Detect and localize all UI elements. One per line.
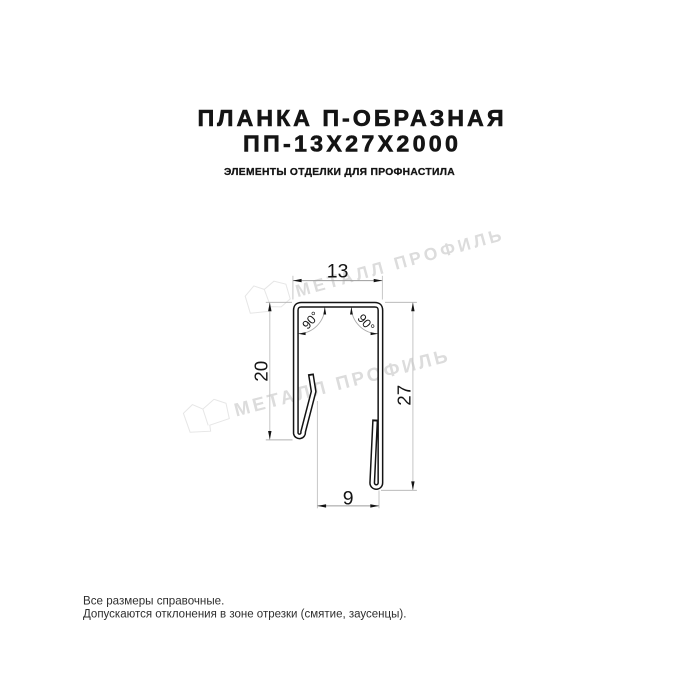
svg-text:27: 27 [394, 385, 415, 406]
svg-text:9: 9 [343, 487, 354, 509]
svg-text:20: 20 [250, 361, 271, 382]
svg-text:ПП-13Х27Х2000: ПП-13Х27Х2000 [243, 131, 461, 157]
svg-text:Допускаются отклонения в зоне: Допускаются отклонения в зоне отрезки (с… [83, 609, 406, 621]
svg-text:Все размеры справочные.: Все размеры справочные. [83, 594, 224, 607]
svg-text:13: 13 [327, 260, 349, 282]
svg-text:ПЛАНКА П-ОБРАЗНАЯ: ПЛАНКА П-ОБРАЗНАЯ [197, 105, 506, 131]
svg-text:ЭЛЕМЕНТЫ ОТДЕЛКИ ДЛЯ ПРОФНАСТИ: ЭЛЕМЕНТЫ ОТДЕЛКИ ДЛЯ ПРОФНАСТИЛА [224, 167, 455, 178]
